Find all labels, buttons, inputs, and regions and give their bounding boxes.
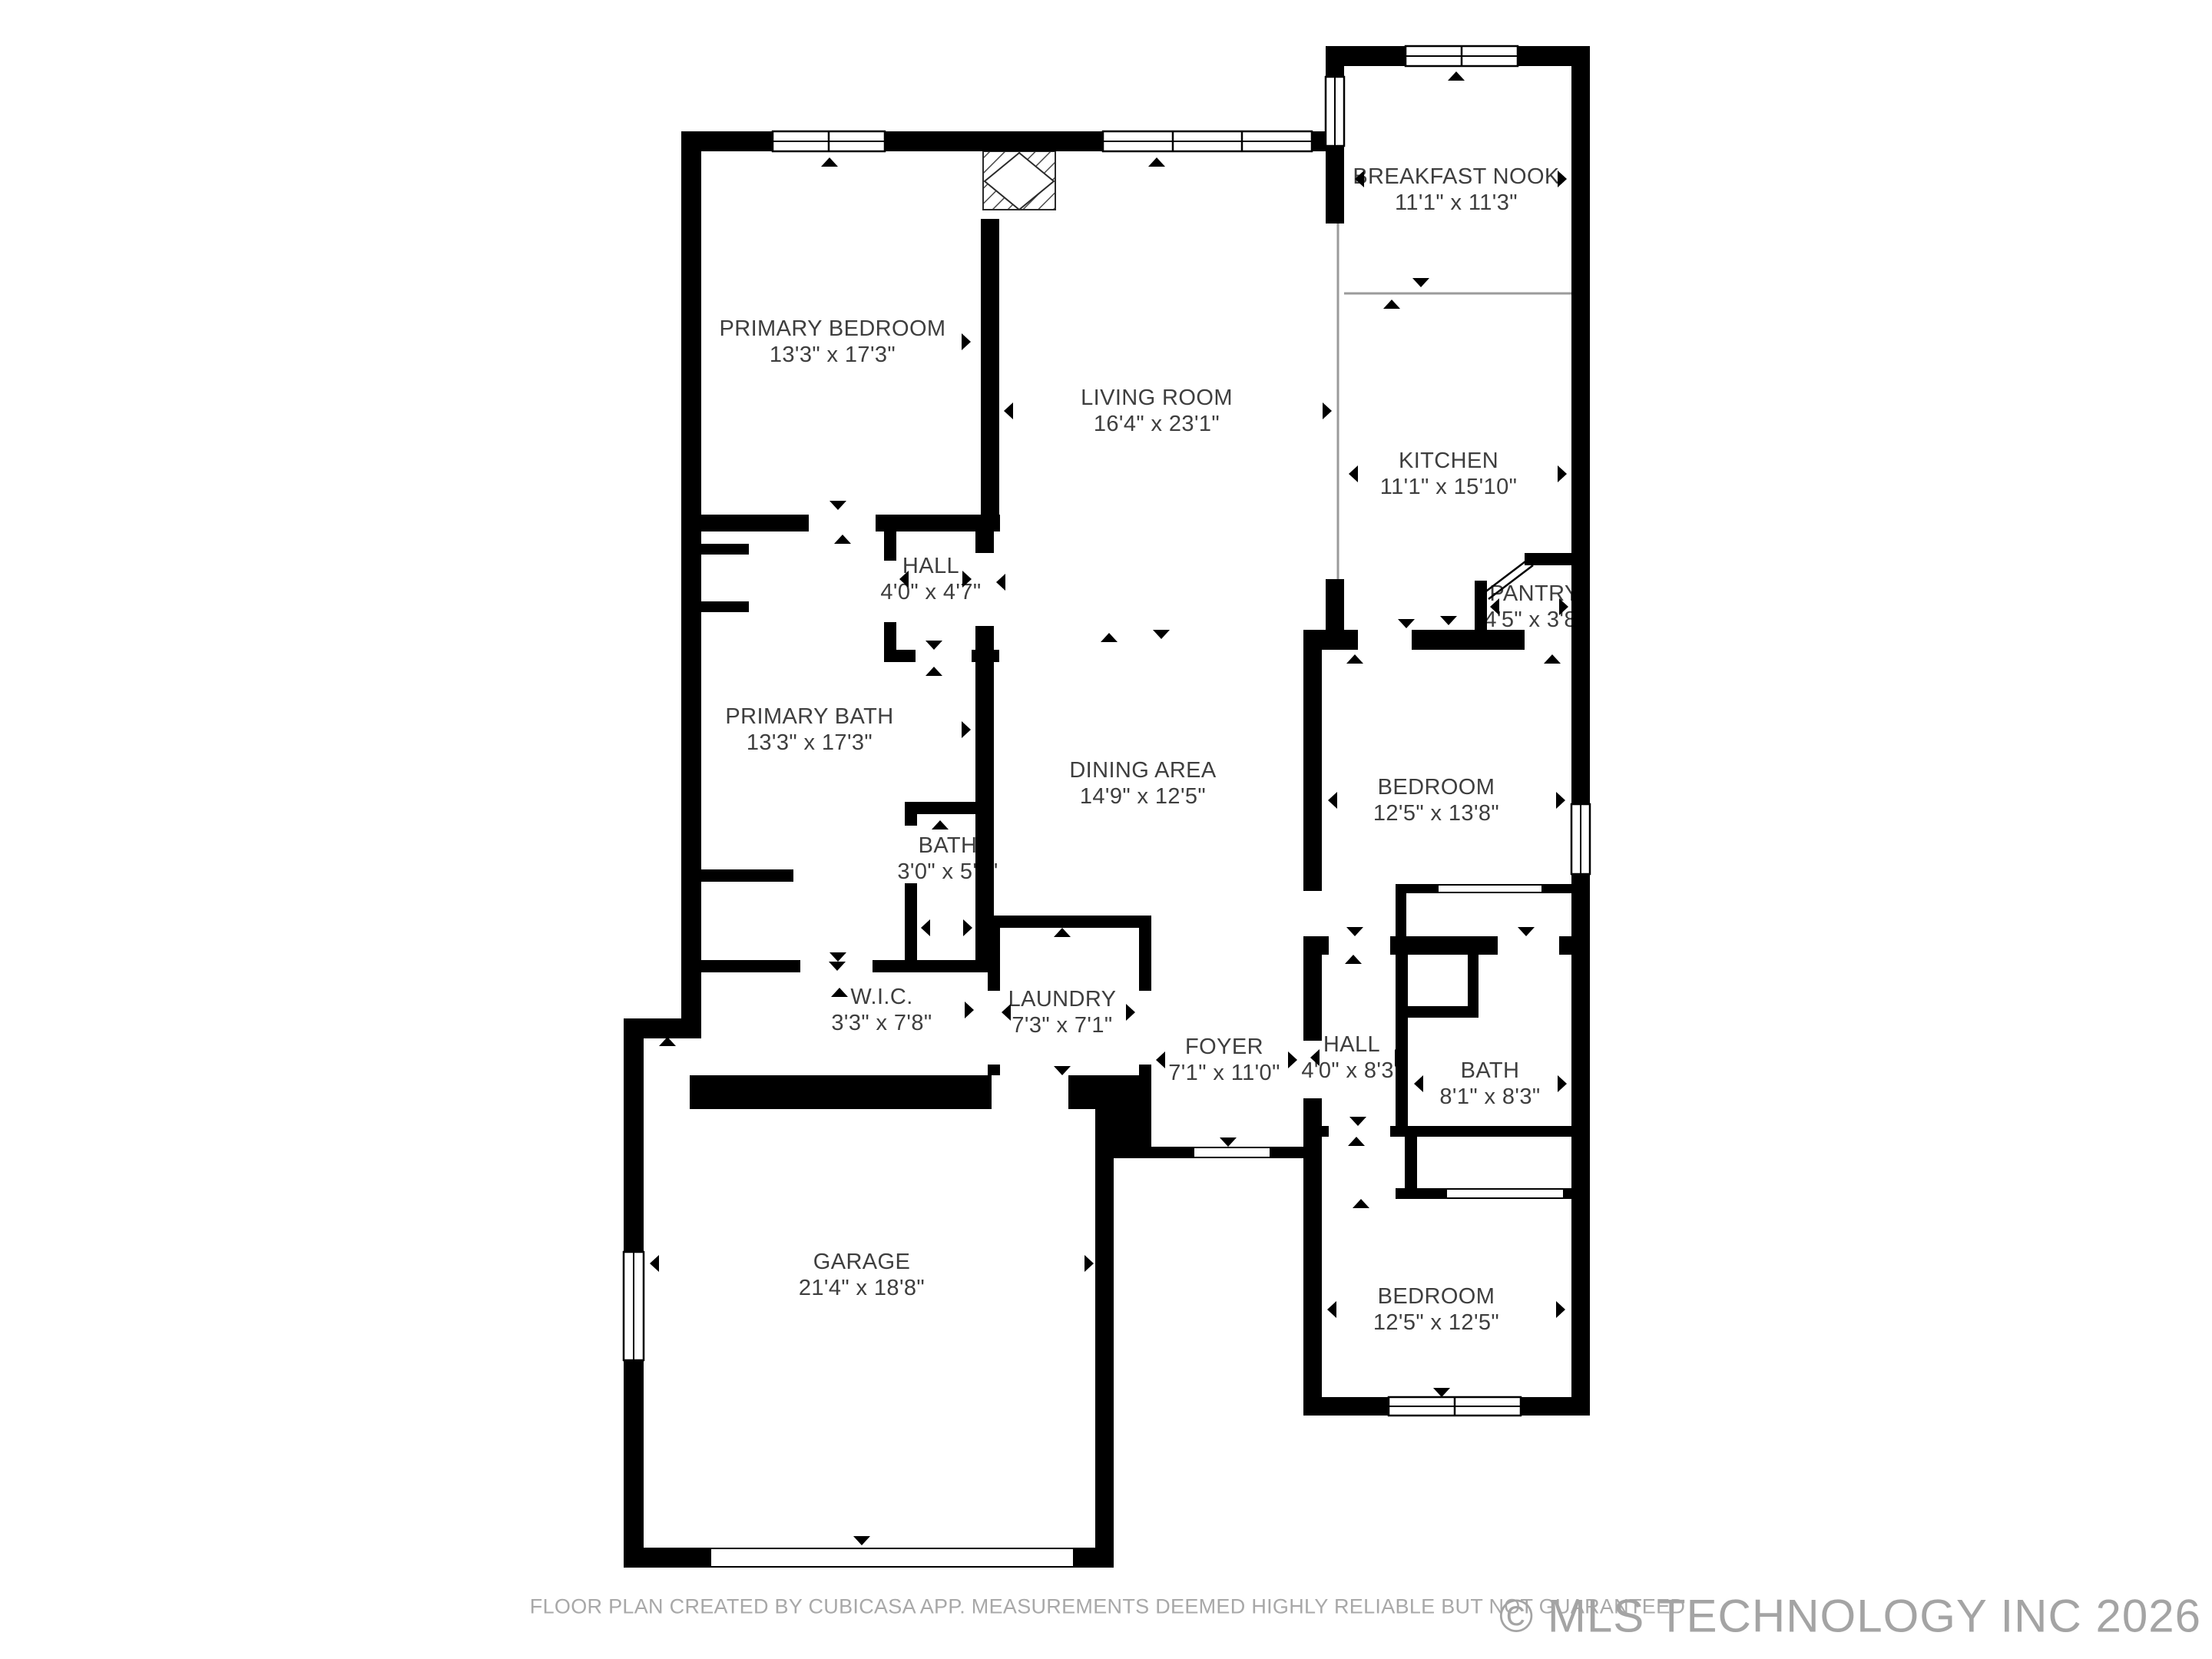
room-name: LAUNDRY bbox=[1008, 986, 1117, 1012]
room-name: BATH bbox=[1439, 1058, 1540, 1084]
room-label-bath-hall: BATH8'1" x 8'3" bbox=[1439, 1058, 1540, 1110]
room-label-bedroom-southeast: BEDROOM12'5" x 12'5" bbox=[1373, 1283, 1499, 1336]
room-name: GARAGE bbox=[799, 1249, 925, 1275]
room-dimensions: 13'3" x 17'3" bbox=[725, 730, 893, 756]
room-name: PANTRY bbox=[1484, 581, 1584, 607]
room-label-bath-small: BATH3'0" x 5'9" bbox=[897, 833, 998, 885]
room-name: KITCHEN bbox=[1380, 448, 1518, 474]
room-dimensions: 12'5" x 13'8" bbox=[1373, 800, 1499, 826]
room-labels: BREAKFAST NOOK11'1" x 11'3"KITCHEN11'1" … bbox=[0, 0, 2212, 1659]
floor-plan: BREAKFAST NOOK11'1" x 11'3"KITCHEN11'1" … bbox=[0, 0, 2212, 1659]
room-dimensions: 16'4" x 23'1" bbox=[1081, 411, 1233, 437]
room-name: PRIMARY BATH bbox=[725, 704, 893, 730]
room-name: BEDROOM bbox=[1373, 774, 1499, 800]
room-dimensions: 11'1" x 11'3" bbox=[1353, 190, 1559, 216]
room-dimensions: 3'3" x 7'8" bbox=[831, 1010, 932, 1036]
room-dimensions: 4'5" x 3'8" bbox=[1484, 607, 1584, 633]
room-label-bedroom-east: BEDROOM12'5" x 13'8" bbox=[1373, 774, 1499, 826]
room-name: PRIMARY BEDROOM bbox=[720, 316, 946, 342]
room-name: LIVING ROOM bbox=[1081, 385, 1233, 411]
room-name: W.I.C. bbox=[831, 984, 932, 1010]
room-dimensions: 4'0" x 8'3" bbox=[1301, 1058, 1402, 1084]
room-label-primary-bath: PRIMARY BATH13'3" x 17'3" bbox=[725, 704, 893, 756]
room-dimensions: 7'3" x 7'1" bbox=[1008, 1012, 1117, 1038]
room-dimensions: 12'5" x 12'5" bbox=[1373, 1310, 1499, 1336]
room-label-wic: W.I.C.3'3" x 7'8" bbox=[831, 984, 932, 1036]
room-dimensions: 8'1" x 8'3" bbox=[1439, 1084, 1540, 1110]
room-dimensions: 11'1" x 15'10" bbox=[1380, 474, 1518, 500]
room-dimensions: 3'0" x 5'9" bbox=[897, 859, 998, 885]
copyright-text: © MLS TECHNOLOGY INC 2026 bbox=[1499, 1590, 2201, 1643]
room-label-foyer: FOYER7'1" x 11'0" bbox=[1168, 1034, 1280, 1086]
room-label-living-room: LIVING ROOM16'4" x 23'1" bbox=[1081, 385, 1233, 437]
room-label-garage: GARAGE21'4" x 18'8" bbox=[799, 1249, 925, 1301]
room-label-primary-bedroom: PRIMARY BEDROOM13'3" x 17'3" bbox=[720, 316, 946, 368]
room-dimensions: 21'4" x 18'8" bbox=[799, 1275, 925, 1301]
room-dimensions: 7'1" x 11'0" bbox=[1168, 1060, 1280, 1086]
room-name: BEDROOM bbox=[1373, 1283, 1499, 1310]
room-label-laundry: LAUNDRY7'3" x 7'1" bbox=[1008, 986, 1117, 1038]
room-dimensions: 13'3" x 17'3" bbox=[720, 342, 946, 368]
room-label-hall-lower: HALL4'0" x 8'3" bbox=[1301, 1031, 1402, 1084]
room-name: HALL bbox=[1301, 1031, 1402, 1058]
room-name: FOYER bbox=[1168, 1034, 1280, 1060]
room-name: BATH bbox=[897, 833, 998, 859]
room-label-hall-upper: HALL4'0" x 4'7" bbox=[880, 553, 981, 605]
room-dimensions: 14'9" x 12'5" bbox=[1069, 783, 1216, 810]
room-label-dining-area: DINING AREA14'9" x 12'5" bbox=[1069, 757, 1216, 810]
room-label-pantry: PANTRY4'5" x 3'8" bbox=[1484, 581, 1584, 633]
room-name: DINING AREA bbox=[1069, 757, 1216, 783]
room-dimensions: 4'0" x 4'7" bbox=[880, 579, 981, 605]
room-label-breakfast-nook: BREAKFAST NOOK11'1" x 11'3" bbox=[1353, 164, 1559, 216]
room-name: BREAKFAST NOOK bbox=[1353, 164, 1559, 190]
room-label-kitchen: KITCHEN11'1" x 15'10" bbox=[1380, 448, 1518, 500]
room-name: HALL bbox=[880, 553, 981, 579]
